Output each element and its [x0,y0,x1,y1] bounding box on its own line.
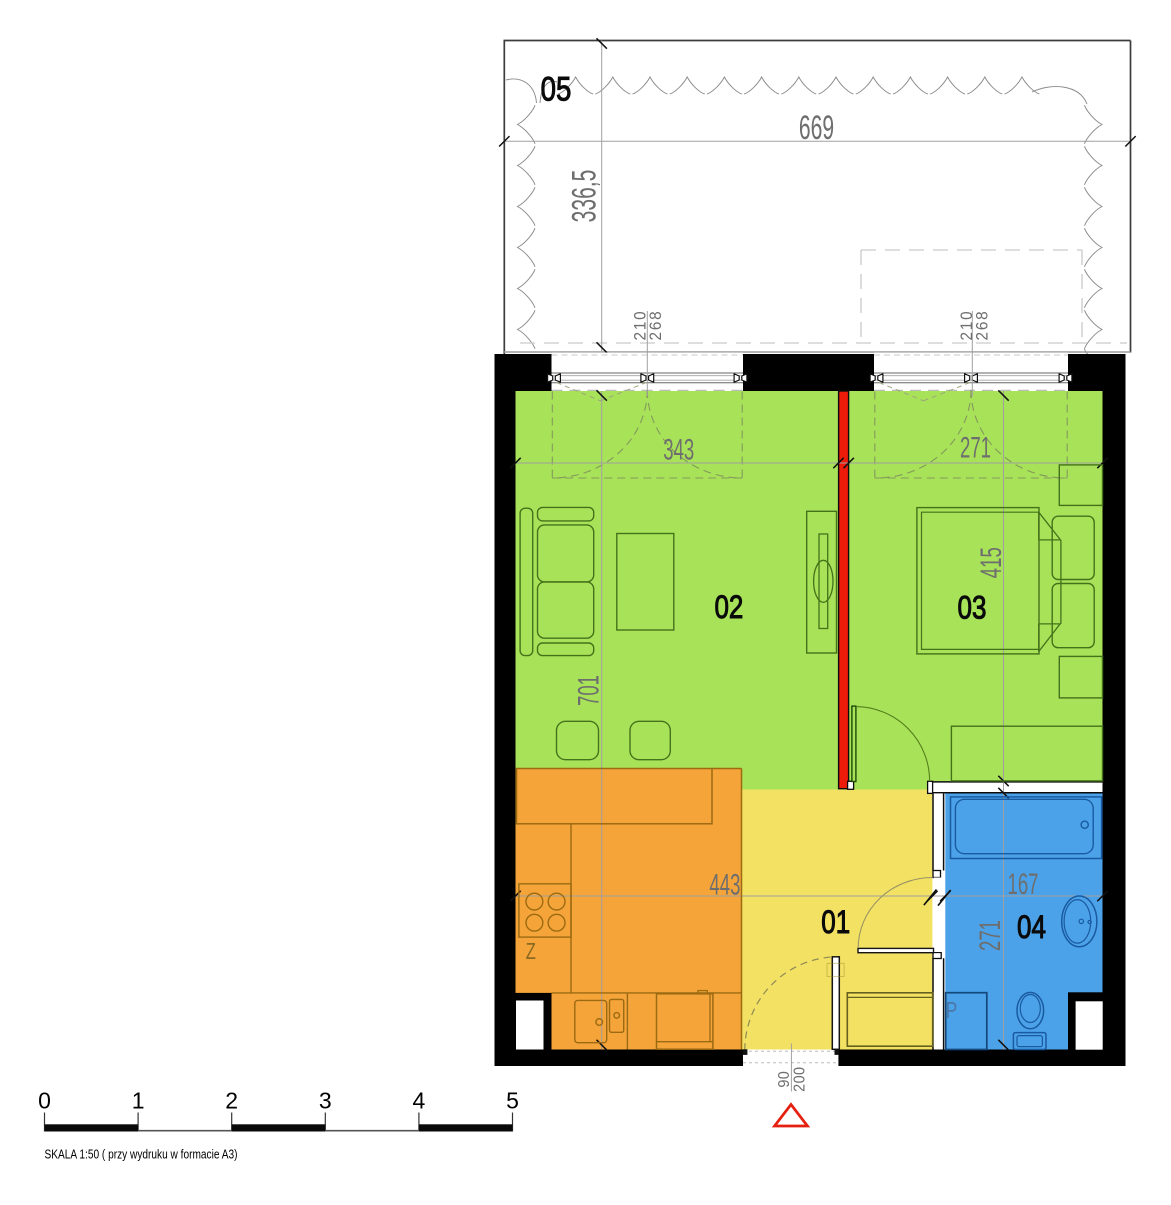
svg-text:5: 5 [506,1088,519,1114]
svg-text:02: 02 [714,589,743,625]
svg-text:3: 3 [319,1088,332,1114]
svg-text:167: 167 [1007,867,1038,901]
svg-text:268: 268 [973,310,992,341]
svg-text:05: 05 [541,70,572,109]
svg-text:Z: Z [526,939,536,964]
svg-text:200: 200 [791,1067,809,1092]
svg-text:SKALA 1:50 ( przy wydruku w fo: SKALA 1:50 ( przy wydruku w formacie A3) [45,1147,238,1162]
svg-text:443: 443 [709,868,740,902]
svg-text:415: 415 [975,547,1009,578]
svg-text:701: 701 [572,675,606,706]
svg-text:271: 271 [960,431,991,465]
svg-text:03: 03 [958,590,987,626]
svg-text:2: 2 [225,1088,238,1114]
svg-text:P: P [946,999,958,1024]
svg-text:04: 04 [1017,909,1046,945]
svg-text:0: 0 [38,1088,51,1114]
svg-text:268: 268 [646,310,665,341]
svg-text:01: 01 [821,904,850,940]
svg-text:343: 343 [663,433,694,467]
svg-text:336,5: 336,5 [564,170,602,223]
svg-text:669: 669 [799,108,834,146]
svg-text:271: 271 [974,920,1008,951]
svg-text:1: 1 [132,1088,145,1114]
svg-text:4: 4 [413,1088,426,1114]
